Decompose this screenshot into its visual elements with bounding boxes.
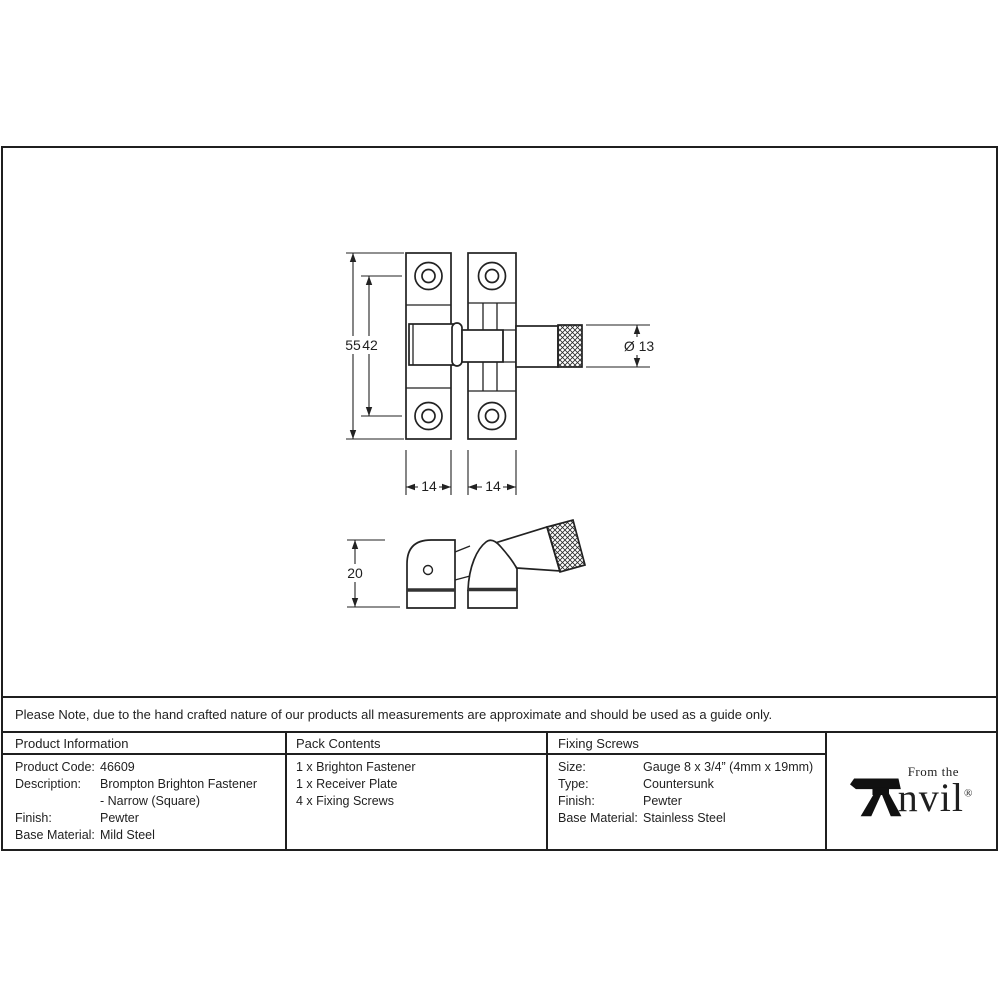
dim-right-plate-width: 14	[485, 478, 501, 494]
bolt-head	[452, 323, 462, 366]
field-value: Countersunk	[643, 776, 825, 793]
anvil-icon	[850, 772, 902, 818]
field-value: 46609	[100, 759, 285, 776]
field-value: Stainless Steel	[643, 810, 825, 827]
field-label: Type:	[558, 776, 643, 793]
side-screw-hole	[424, 566, 433, 575]
sheet-frame: 55 42 Ø 13 14 14	[1, 146, 998, 851]
dim-side-height: 20	[347, 565, 363, 581]
logo-brand: nvil®	[898, 778, 974, 818]
spec-table: Product Information Pack Contents Fixing…	[3, 731, 996, 849]
field-value: Pewter	[643, 793, 825, 810]
field-value: Gauge 8 x 3/4” (4mm x 19mm)	[643, 759, 825, 776]
knurled-knob	[558, 325, 582, 367]
field-label: Description:	[15, 776, 100, 793]
dim-hole-spacing: 42	[362, 337, 378, 353]
header-product-information: Product Information	[3, 733, 287, 755]
field-label: Product Code:	[15, 759, 100, 776]
field-label: Finish:	[558, 793, 643, 810]
from-the-anvil-logo: From the nvil®	[850, 765, 974, 818]
field-label: Base Material:	[15, 827, 100, 844]
field-value: Pewter	[100, 810, 285, 827]
field-label: Size:	[558, 759, 643, 776]
keeper	[409, 324, 457, 365]
field-label: Base Material:	[558, 810, 643, 827]
pack-item: 4 x Fixing Screws	[296, 793, 546, 810]
technical-drawing: 55 42 Ø 13 14 14	[3, 148, 996, 696]
dim-knob-diameter: Ø 13	[624, 338, 655, 354]
product-information-cell: Product Code:46609 Description:Brompton …	[3, 755, 287, 849]
field-label: Finish:	[15, 810, 100, 827]
measurement-note-row: Please Note, due to the hand crafted nat…	[3, 696, 996, 731]
bolt	[462, 330, 503, 362]
registered-mark: ®	[964, 787, 973, 799]
field-value-continued: - Narrow (Square)	[100, 793, 285, 810]
dim-left-plate-width: 14	[421, 478, 437, 494]
pack-item: 1 x Receiver Plate	[296, 776, 546, 793]
field-value: Mild Steel	[100, 827, 285, 844]
header-pack-contents: Pack Contents	[287, 733, 548, 755]
spec-sheet-page: 55 42 Ø 13 14 14	[0, 0, 1000, 1000]
side-view	[407, 520, 585, 608]
side-dimension-labels: 20	[344, 564, 366, 582]
fixing-screws-cell: Size:Gauge 8 x 3/4” (4mm x 19mm) Type:Co…	[548, 755, 827, 849]
field-value: Brompton Brighton Fastener	[100, 776, 285, 793]
header-fixing-screws: Fixing Screws	[548, 733, 827, 755]
pack-item: 1 x Brighton Fastener	[296, 759, 546, 776]
anvil-wordmark: From the nvil®	[898, 765, 974, 818]
logo-cell: From the nvil®	[827, 733, 996, 849]
plan-view	[406, 253, 582, 439]
dim-overall-height: 55	[345, 337, 361, 353]
technical-drawing-area: 55 42 Ø 13 14 14	[3, 148, 996, 696]
measurement-note: Please Note, due to the hand crafted nat…	[15, 707, 772, 722]
knob-shaft	[516, 326, 558, 367]
pack-contents-cell: 1 x Brighton Fastener 1 x Receiver Plate…	[287, 755, 548, 849]
